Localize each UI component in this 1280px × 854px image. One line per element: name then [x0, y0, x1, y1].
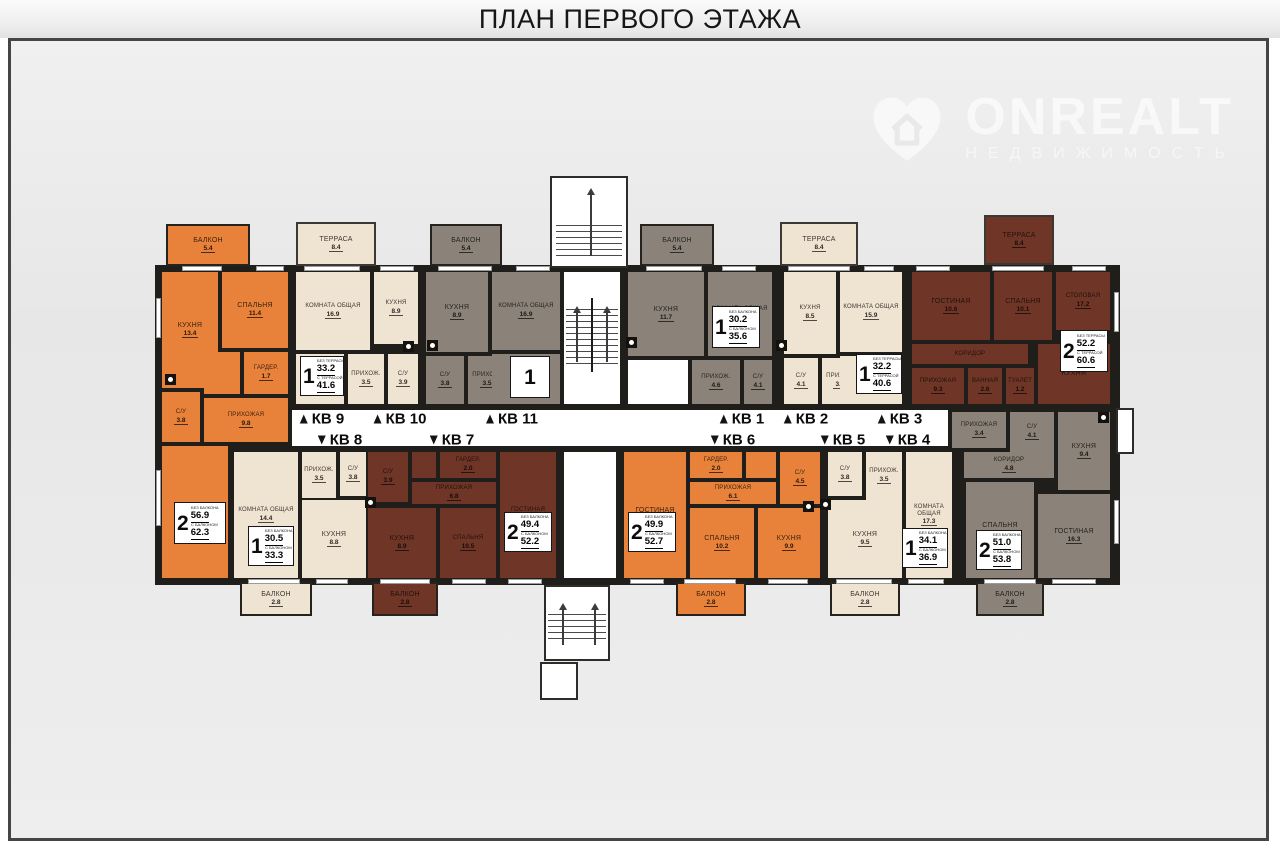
- room-68: С/У4.1: [1010, 412, 1054, 452]
- window: [984, 579, 1036, 584]
- window: [630, 579, 664, 584]
- window: [1114, 292, 1119, 332]
- room-label: КОМНАТА ОБЩАЯ: [305, 303, 360, 310]
- room-16: КОМНАТА ОБЩАЯ16.9: [492, 272, 560, 350]
- apartment-spec: 1БЕЗ ТЕРРАСЫ32.2С ТЕРРАСОЙ40.6: [856, 354, 902, 394]
- apartment-spec: 1БЕЗ ТЕРРАСЫ33.2С ТЕРРАСОЙ41.6: [300, 356, 344, 396]
- unit-pointer-icon: [711, 436, 719, 445]
- room-6: ПРИХОЖАЯ9.8: [204, 398, 288, 442]
- spec-area-value: 32.2: [873, 362, 892, 374]
- room-area-value: 4.5: [793, 478, 806, 486]
- room-42: ПРИХОЖ.3.5: [302, 452, 336, 498]
- spec-area-value: 33.3: [265, 551, 284, 563]
- room-label: КУХНЯ: [654, 306, 678, 314]
- room-label: СПАЛЬНЯ: [237, 302, 273, 310]
- room-label: КУХНЯ: [853, 531, 877, 539]
- room-label: С/У: [348, 466, 358, 473]
- building-entry-bottom: [544, 585, 610, 661]
- unit-pointer-icon: [720, 415, 728, 424]
- unit-label: КВ 3: [878, 411, 923, 428]
- unit-label-text: КВ 1: [732, 411, 765, 428]
- room-label: БАЛКОН: [995, 591, 1025, 599]
- spec-area-value: 52.2: [1077, 339, 1096, 351]
- spec-area-value: 52.7: [645, 537, 664, 549]
- spec-area-value: 33.2: [317, 364, 336, 376]
- building-entry-top: [550, 176, 628, 268]
- window: [304, 266, 360, 271]
- room-area-value: 3.8: [174, 417, 187, 425]
- unit-label: КВ 9: [300, 411, 345, 428]
- unit-label-text: КВ 9: [312, 411, 345, 428]
- room-label: С/У: [840, 466, 850, 473]
- window: [156, 298, 161, 338]
- room-63: ПРИХОЖ.3.5: [866, 452, 902, 500]
- apartment-spec: 1БЕЗ БАЛКОНА30.2С БАЛКОНОМ35.6: [712, 306, 760, 348]
- window: [438, 266, 492, 271]
- apartment-spec: 2БЕЗ БАЛКОНА49.4С БАЛКОНОМ52.2: [504, 512, 552, 552]
- spec-values: БЕЗ БАЛКОНА49.4С БАЛКОНОМ52.2: [521, 515, 549, 549]
- spec-area-value: 60.6: [1077, 356, 1096, 368]
- spec-rooms-count: 2: [631, 522, 643, 543]
- room-38: ВАННАЯ2.6: [968, 368, 1002, 404]
- unit-label: КВ 8: [318, 432, 363, 449]
- room-area-value: 8.8: [327, 539, 340, 547]
- window: [182, 266, 222, 271]
- apartment-spec: 2БЕЗ БАЛКОНА56.9С БАЛКОНОМ62.3: [174, 502, 226, 544]
- room-label: С/У: [795, 470, 805, 477]
- room-area-value: 3.9: [396, 379, 409, 387]
- room-area-value: 9.9: [782, 543, 795, 551]
- room-area-value: 4.1: [1025, 432, 1038, 440]
- room-area-value: 6.8: [447, 493, 460, 501]
- room-label: СПАЛЬНЯ: [1005, 298, 1041, 306]
- room-area-value: 1.7: [259, 373, 272, 381]
- room-46: С/У3.9: [368, 452, 408, 502]
- room-34: СПАЛЬНЯ10.1: [994, 272, 1052, 340]
- room-label: КУХНЯ: [799, 305, 820, 312]
- room-label: КОМНАТА ОБЩАЯ: [906, 504, 952, 517]
- window: [452, 579, 486, 584]
- spec-condition-label: С БАЛКОНОМ: [191, 524, 217, 528]
- stair-direction-arrow: [562, 605, 564, 645]
- room-area-value: 3.4: [972, 430, 985, 438]
- balcony-20: БАЛКОН5.4: [640, 224, 714, 266]
- vent-shaft: [776, 340, 787, 351]
- room-label: ГАРДЕР.: [254, 365, 278, 372]
- room-13: С/У3.9: [388, 354, 418, 404]
- room-72: ГОСТИНАЯ16.3: [1038, 494, 1110, 578]
- room-label: БАЛКОН: [390, 591, 420, 599]
- room-area-value: 4.8: [1002, 465, 1015, 473]
- room-area-value: 9.8: [239, 420, 252, 428]
- spec-condition-label: С БАЛКОНОМ: [521, 533, 544, 537]
- room-27: КУХНЯ8.5: [784, 272, 836, 354]
- spec-area-value: 52.2: [521, 537, 540, 549]
- room-label: С/У: [398, 371, 408, 378]
- unit-label-text: КВ 5: [833, 432, 866, 449]
- spec-rooms-count: 1: [524, 367, 536, 388]
- balcony-73: БАЛКОН2.8: [976, 582, 1044, 616]
- room-area-value: 8.9: [389, 308, 402, 316]
- room-28: КОМНАТА ОБЩАЯ15.9: [840, 272, 902, 352]
- room-area-value: 8.4: [329, 244, 342, 252]
- room-area-value: 11.4: [247, 310, 263, 318]
- room-label: БАЛКОН: [451, 237, 481, 245]
- spec-area-value: 49.9: [645, 520, 664, 532]
- window: [836, 579, 892, 584]
- spec-area-value: 35.6: [729, 332, 748, 344]
- spec-rooms-count: 2: [979, 540, 991, 561]
- unit-label-text: КВ 7: [442, 432, 475, 449]
- room-area-value: 3.8: [346, 474, 359, 482]
- vent-shaft: [803, 501, 814, 512]
- room-9: КОМНАТА ОБЩАЯ16.9: [296, 272, 370, 350]
- window: [316, 579, 348, 584]
- stair-divider: [591, 298, 593, 372]
- room-label: ПРИХОЖАЯ: [715, 485, 751, 492]
- room-label: КУХНЯ: [1072, 443, 1096, 451]
- vent-shaft: [365, 497, 376, 508]
- room-area-value: 2.6: [978, 386, 991, 394]
- room-label: КУХНЯ: [385, 300, 406, 307]
- room-37: ПРИХОЖАЯ9.3: [912, 368, 964, 404]
- balcony-45: БАЛКОН2.8: [240, 582, 312, 616]
- window: [992, 266, 1044, 271]
- unit-label: КВ 10: [374, 411, 427, 428]
- room-area-value: 8.5: [803, 313, 816, 321]
- spec-values: БЕЗ БАЛКОНА30.2С БАЛКОНОМ35.6: [729, 310, 757, 344]
- unit-pointer-icon: [486, 415, 494, 424]
- unit-label: КВ 11: [486, 411, 538, 428]
- room-58: С/У4.5: [780, 452, 820, 504]
- spec-rooms-count: 1: [905, 538, 917, 559]
- spec-condition-label: С БАЛКОНОМ: [919, 549, 940, 553]
- spec-values: БЕЗ ТЕРРАСЫ33.2С ТЕРРАСОЙ41.6: [317, 359, 341, 393]
- room-47: ГАРДЕР.2.0: [440, 452, 496, 478]
- room-33: ГОСТИНАЯ10.6: [912, 272, 990, 340]
- room-5: С/У3.8: [162, 392, 200, 442]
- room-area-value: 5.4: [201, 245, 214, 253]
- room-area-value: 4.6: [709, 382, 722, 390]
- room-label: ГАРДЕР.: [704, 457, 728, 464]
- room-area-value: 9.3: [931, 386, 944, 394]
- room-43: С/У3.8: [340, 452, 366, 496]
- room-area-value: 3.5: [877, 476, 890, 484]
- building-porch-right: [1116, 408, 1134, 454]
- spec-area-value: 30.5: [265, 534, 284, 546]
- window: [722, 266, 756, 271]
- balcony-0: БАЛКОН5.4: [166, 224, 250, 266]
- room-2: СПАЛЬНЯ11.4: [222, 272, 288, 348]
- room-label: ВАННАЯ: [972, 378, 998, 385]
- vent-shaft: [626, 337, 637, 348]
- unit-label-text: КВ 11: [498, 411, 538, 428]
- room-area-value: 1.2: [1013, 386, 1026, 394]
- room-label: КОРИДОР: [955, 351, 986, 358]
- spec-rooms-count: 1: [303, 366, 315, 387]
- room-label: КУХНЯ: [777, 535, 801, 543]
- unit-label: КВ 7: [430, 432, 475, 449]
- window: [646, 266, 702, 271]
- spec-rooms-count: 2: [1063, 341, 1075, 362]
- vent-shaft: [427, 340, 438, 351]
- room-label: ПРИХОЖАЯ: [961, 422, 997, 429]
- spec-area-value: 40.6: [873, 379, 892, 391]
- spec-values: БЕЗ БАЛКОНА34.1С БАЛКОНОМ36.9: [919, 531, 945, 565]
- window: [908, 579, 944, 584]
- room-area-value: 3.5: [359, 379, 372, 387]
- room-60: КУХНЯ9.9: [758, 508, 820, 578]
- terrace-32: ТЕРРАСА8.4: [984, 215, 1054, 265]
- unit-label-text: КВ 6: [723, 432, 756, 449]
- unit-pointer-icon: [318, 436, 326, 445]
- room-70: КОРИДОР4.8: [964, 452, 1054, 478]
- room-label: СПАЛЬНЯ: [982, 522, 1018, 530]
- room-69: КУХНЯ9.4: [1058, 412, 1110, 490]
- unit-pointer-icon: [300, 415, 308, 424]
- room-label: ГАРДЕР.: [456, 457, 480, 464]
- unit-label-text: КВ 8: [330, 432, 363, 449]
- room-area-value: 5.4: [670, 245, 683, 253]
- room-label: БАЛКОН: [850, 591, 880, 599]
- room-label: ПРИХОЖ.: [701, 374, 731, 381]
- stair-treads: [556, 220, 622, 256]
- room-label: БАЛКОН: [193, 237, 223, 245]
- room-area-value: 4.1: [751, 382, 764, 390]
- room-49: ПРИХОЖАЯ6.8: [412, 482, 496, 504]
- apartment-spec: 1БЕЗ БАЛКОНА34.1С БАЛКОНОМ36.9: [902, 528, 948, 568]
- stair-direction-arrow: [606, 308, 608, 362]
- room-label: СТОЛОВАЯ: [1066, 293, 1100, 300]
- room-area-value: 17.2: [1075, 301, 1092, 309]
- spec-values: БЕЗ ТЕРРАСЫ52.2С ТЕРРАСОЙ60.6: [1077, 334, 1105, 368]
- room-area-value: 3.9: [381, 477, 394, 485]
- spec-condition-label: С БАЛКОНОМ: [993, 551, 1014, 555]
- spec-values: БЕЗ БАЛКОНА49.9С БАЛКОНОМ52.7: [645, 515, 673, 549]
- unit-label-text: КВ 10: [386, 411, 427, 428]
- spec-area-value: 49.4: [521, 520, 540, 532]
- vent-shaft: [165, 374, 176, 385]
- room-area-value: 2.0: [709, 465, 722, 473]
- room-area-value: 2.8: [269, 599, 282, 607]
- room-area-value: 13.4: [182, 330, 199, 338]
- room-36: КОРИДОР: [912, 344, 1028, 364]
- room-label: С/У: [753, 374, 763, 381]
- apartment-spec: 2БЕЗ БАЛКОНА51.0С БАЛКОНОМ53.8: [976, 530, 1022, 570]
- room-label: КУХНЯ: [178, 322, 202, 330]
- unit-pointer-icon: [784, 415, 792, 424]
- apartment-spec: 1: [510, 356, 550, 398]
- room-zone: [412, 452, 436, 478]
- spec-rooms-count: 1: [859, 364, 871, 385]
- room-label: С/У: [440, 372, 450, 379]
- room-area-value: 3.8: [438, 380, 451, 388]
- room-label: СПАЛЬНЯ: [704, 535, 740, 543]
- room-label: ГОСТИНАЯ: [1054, 528, 1093, 536]
- room-label: ТЕРРАСА: [1002, 232, 1035, 240]
- spec-area-value: 41.6: [317, 381, 336, 393]
- room-65: КУХНЯ9.5: [828, 500, 902, 578]
- room-17: С/У3.8: [426, 356, 464, 404]
- stair-treads: [548, 609, 606, 639]
- room-area-value: 4.1: [794, 381, 807, 389]
- terrace-26: ТЕРРАСА8.4: [780, 222, 858, 266]
- spec-condition-label: С ТЕРРАСОЙ: [1077, 352, 1100, 356]
- room-label: С/У: [383, 469, 393, 476]
- stair-direction-arrow: [576, 308, 578, 362]
- window: [916, 266, 950, 271]
- room-label: КОМНАТА ОБЩАЯ: [238, 507, 293, 514]
- room-35: СТОЛОВАЯ17.2: [1056, 272, 1110, 330]
- vent-shaft: [403, 341, 414, 352]
- room-area-value: 11.7: [658, 314, 674, 322]
- room-area-value: 6.1: [726, 493, 739, 501]
- spec-values: БЕЗ ТЕРРАСЫ32.2С ТЕРРАСОЙ40.6: [873, 357, 899, 391]
- room-area-value: 16.3: [1066, 536, 1083, 544]
- room-area-value: 9.5: [858, 539, 871, 547]
- window: [516, 266, 550, 271]
- spec-condition-label: БЕЗ БАЛКОНА: [919, 532, 940, 536]
- room-label: КУХНЯ: [445, 304, 469, 312]
- window: [788, 266, 850, 271]
- room-area-value: 2.8: [704, 599, 717, 607]
- room-label: ПРИХОЖАЯ: [920, 378, 956, 385]
- unit-label: КВ 4: [886, 432, 931, 449]
- spec-condition-label: С ТЕРРАСОЙ: [317, 377, 336, 381]
- room-zone: [204, 352, 240, 394]
- vent-shaft: [1098, 412, 1109, 423]
- room-label: КОМНАТА ОБЩАЯ: [843, 304, 898, 311]
- room-10: КУХНЯ8.9: [374, 272, 418, 344]
- window: [1052, 579, 1096, 584]
- room-label: КОРИДОР: [994, 457, 1025, 464]
- apartment-spec: 2БЕЗ ТЕРРАСЫ52.2С ТЕРРАСОЙ60.6: [1060, 330, 1108, 372]
- spec-condition-label: БЕЗ ТЕРРАСЫ: [1077, 335, 1100, 339]
- floor-plan: БАЛКОН5.4КУХНЯ13.4СПАЛЬНЯ11.4ГАРДЕР.1.7С…: [0, 0, 1280, 854]
- balcony-53: БАЛКОН2.8: [372, 582, 438, 616]
- room-area-value: 16.9: [518, 311, 535, 319]
- room-label: С/У: [1027, 424, 1037, 431]
- room-label: ТЕРРАСА: [802, 236, 835, 244]
- balcony-61: БАЛКОН2.8: [676, 582, 746, 616]
- spec-area-value: 53.8: [993, 555, 1012, 567]
- spec-area-value: 36.9: [919, 553, 938, 565]
- room-29: С/У4.1: [784, 358, 818, 404]
- room-label: КОМНАТА ОБЩАЯ: [498, 303, 553, 310]
- spec-condition-label: БЕЗ БАЛКОНА: [265, 530, 286, 534]
- room-label: ТУАЛЕТ: [1008, 378, 1032, 385]
- staircase: [564, 272, 620, 404]
- room-area-value: 10.5: [460, 543, 477, 551]
- spec-condition-label: БЕЗ БАЛКОНА: [993, 534, 1014, 538]
- room-area-value: 2.8: [1003, 599, 1016, 607]
- room-label: ПРИХОЖ.: [869, 468, 899, 475]
- room-57: ПРИХОЖАЯ6.1: [690, 482, 776, 504]
- vent-shaft: [820, 499, 831, 510]
- window: [256, 266, 284, 271]
- spec-condition-label: С БАЛКОНОМ: [265, 547, 286, 551]
- terrace-8: ТЕРРАСА8.4: [296, 222, 376, 266]
- unit-label-text: КВ 2: [796, 411, 829, 428]
- room-51: КУХНЯ8.9: [368, 508, 436, 578]
- room-area-value: 9.4: [1077, 451, 1090, 459]
- spec-values: БЕЗ БАЛКОНА30.5С БАЛКОНОМ33.3: [265, 529, 291, 563]
- room-area-value: 3.5: [312, 475, 325, 483]
- window: [380, 579, 430, 584]
- room-area-value: 8.4: [812, 244, 825, 252]
- room-39: ТУАЛЕТ1.2: [1006, 368, 1034, 404]
- spec-condition-label: БЕЗ БАЛКОНА: [521, 516, 544, 520]
- room-label: С/У: [796, 373, 806, 380]
- room-area-value: 14.4: [258, 515, 275, 523]
- building-vestibule: [564, 452, 616, 578]
- room-label: С/У: [176, 409, 186, 416]
- stair-direction-arrow: [590, 190, 592, 256]
- spec-condition-label: БЕЗ БАЛКОНА: [645, 516, 668, 520]
- spec-condition-label: БЕЗ БАЛКОНА: [729, 311, 752, 315]
- spec-condition-label: С ТЕРРАСОЙ: [873, 375, 894, 379]
- unit-pointer-icon: [886, 436, 894, 445]
- stair-direction-arrow: [594, 605, 596, 645]
- balcony-14: БАЛКОН5.4: [430, 224, 502, 266]
- room-label: КУХНЯ: [390, 535, 414, 543]
- spec-area-value: 56.9: [191, 511, 210, 523]
- spec-condition-label: БЕЗ ТЕРРАСЫ: [317, 360, 336, 364]
- spec-values: БЕЗ БАЛКОНА56.9С БАЛКОНОМ62.3: [191, 506, 223, 540]
- unit-label: КВ 5: [821, 432, 866, 449]
- room-area-value: 2.8: [858, 599, 871, 607]
- spec-condition-label: БЕЗ БАЛКОНА: [191, 507, 217, 511]
- room-label: БАЛКОН: [696, 591, 726, 599]
- room-21: КУХНЯ11.7: [628, 272, 704, 356]
- apartment-spec: 2БЕЗ БАЛКОНА49.9С БАЛКОНОМ52.7: [628, 512, 676, 552]
- room-area-value: 2.8: [398, 599, 411, 607]
- spec-condition-label: С БАЛКОНОМ: [645, 533, 668, 537]
- room-label: ГОСТИНАЯ: [931, 298, 970, 306]
- spec-rooms-count: 1: [251, 536, 263, 557]
- unit-label-text: КВ 3: [890, 411, 923, 428]
- room-23: ПРИХОЖ.4.6: [692, 360, 740, 404]
- room-67: ПРИХОЖАЯ3.4: [952, 412, 1006, 448]
- room-59: СПАЛЬНЯ10.2: [690, 508, 754, 578]
- room-12: ПРИХОЖ.3.5: [348, 354, 384, 404]
- room-area-value: 2.0: [461, 465, 474, 473]
- unit-label: КВ 6: [711, 432, 756, 449]
- spec-condition-label: БЕЗ ТЕРРАСЫ: [873, 358, 894, 362]
- spec-condition-label: С БАЛКОНОМ: [729, 328, 752, 332]
- unit-pointer-icon: [374, 415, 382, 424]
- room-label: КУХНЯ: [322, 531, 346, 539]
- window: [1072, 266, 1106, 271]
- spec-rooms-count: 2: [507, 522, 519, 543]
- apartment-spec: 1БЕЗ БАЛКОНА30.5С БАЛКОНОМ33.3: [248, 526, 294, 566]
- balcony-66: БАЛКОН2.8: [830, 582, 900, 616]
- room-label: СПАЛЬНЯ: [453, 535, 484, 542]
- room-52: СПАЛЬНЯ10.5: [440, 508, 496, 578]
- spec-area-value: 30.2: [729, 315, 748, 327]
- window: [248, 579, 300, 584]
- window: [508, 579, 542, 584]
- spec-values: БЕЗ БАЛКОНА51.0С БАЛКОНОМ53.8: [993, 533, 1019, 567]
- room-label: БАЛКОН: [261, 591, 291, 599]
- room-area-value: 10.2: [714, 543, 731, 551]
- building-porch: [540, 662, 578, 700]
- room-area-value: 8.9: [450, 312, 463, 320]
- room-area-value: 8.9: [395, 543, 408, 551]
- spec-rooms-count: 1: [715, 317, 727, 338]
- room-label: ПРИХОЖ.: [351, 371, 381, 378]
- window: [380, 266, 414, 271]
